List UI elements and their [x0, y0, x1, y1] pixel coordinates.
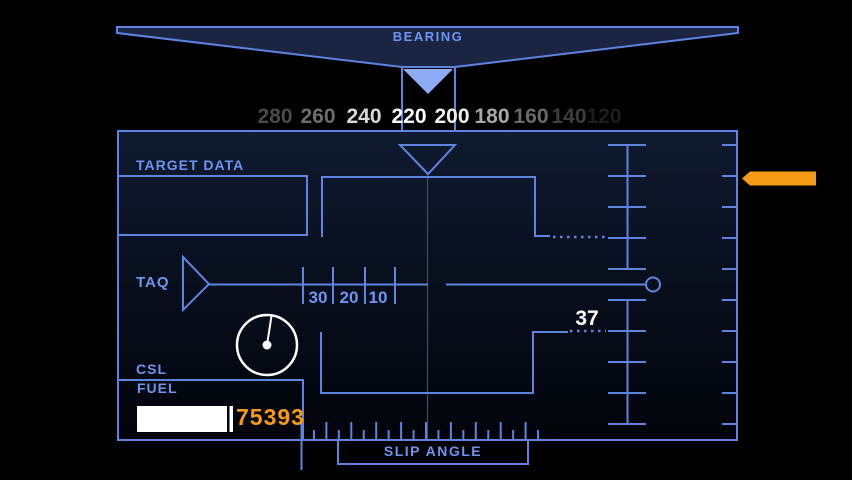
taq-assembly [183, 257, 660, 310]
taq-label: TAQ [136, 274, 170, 291]
bearing-scale: 280260240220200180160140120 [0, 105, 852, 129]
radar-upper-bracket [322, 177, 606, 237]
fuel-value: 75393 [236, 404, 305, 431]
bearing-scale-number: 180 [474, 105, 509, 129]
fuel-label: FUEL [137, 380, 178, 396]
taq-tick-label-20: 20 [340, 288, 359, 308]
clock-gauge-icon [237, 315, 297, 375]
radar-lower-bracket-line [321, 332, 568, 393]
fuel-level-bar [137, 406, 233, 432]
bearing-scale-number: 120 [586, 105, 621, 129]
right-edge-ticks [722, 145, 736, 424]
hud-root: BEARING 280260240220200180160140120 TARG… [0, 0, 852, 480]
taq-end-circle-icon [646, 278, 660, 292]
csl-label: CSL [136, 361, 167, 377]
taq-tick-label-30: 30 [309, 288, 328, 308]
bearing-pointer-icon [403, 69, 453, 94]
hud-linework [0, 0, 852, 480]
radar-upper-bracket-line [322, 177, 550, 237]
target-data-label: TARGET DATA [136, 157, 244, 173]
range-cursor-arrow-icon [742, 172, 816, 186]
radar-lower-bracket [321, 331, 606, 393]
bearing-title: BEARING [393, 29, 463, 44]
center-marker-triangle-icon [400, 145, 455, 174]
bearing-scale-number: 260 [300, 105, 335, 129]
range-readout: 37 [575, 307, 598, 331]
bearing-scale-number: 200 [434, 105, 469, 129]
bearing-scale-number: 160 [513, 105, 548, 129]
taq-tick-label-10: 10 [369, 288, 388, 308]
slip-angle-ticks [302, 422, 539, 439]
target-data-box [118, 176, 307, 235]
bearing-scale-number: 280 [257, 105, 292, 129]
bearing-scale-number: 220 [391, 105, 426, 129]
bearing-scale-number: 240 [346, 105, 381, 129]
taq-pointer-icon [183, 257, 209, 310]
slip-angle-label: SLIP ANGLE [384, 443, 482, 459]
bearing-scale-number: 140 [551, 105, 586, 129]
